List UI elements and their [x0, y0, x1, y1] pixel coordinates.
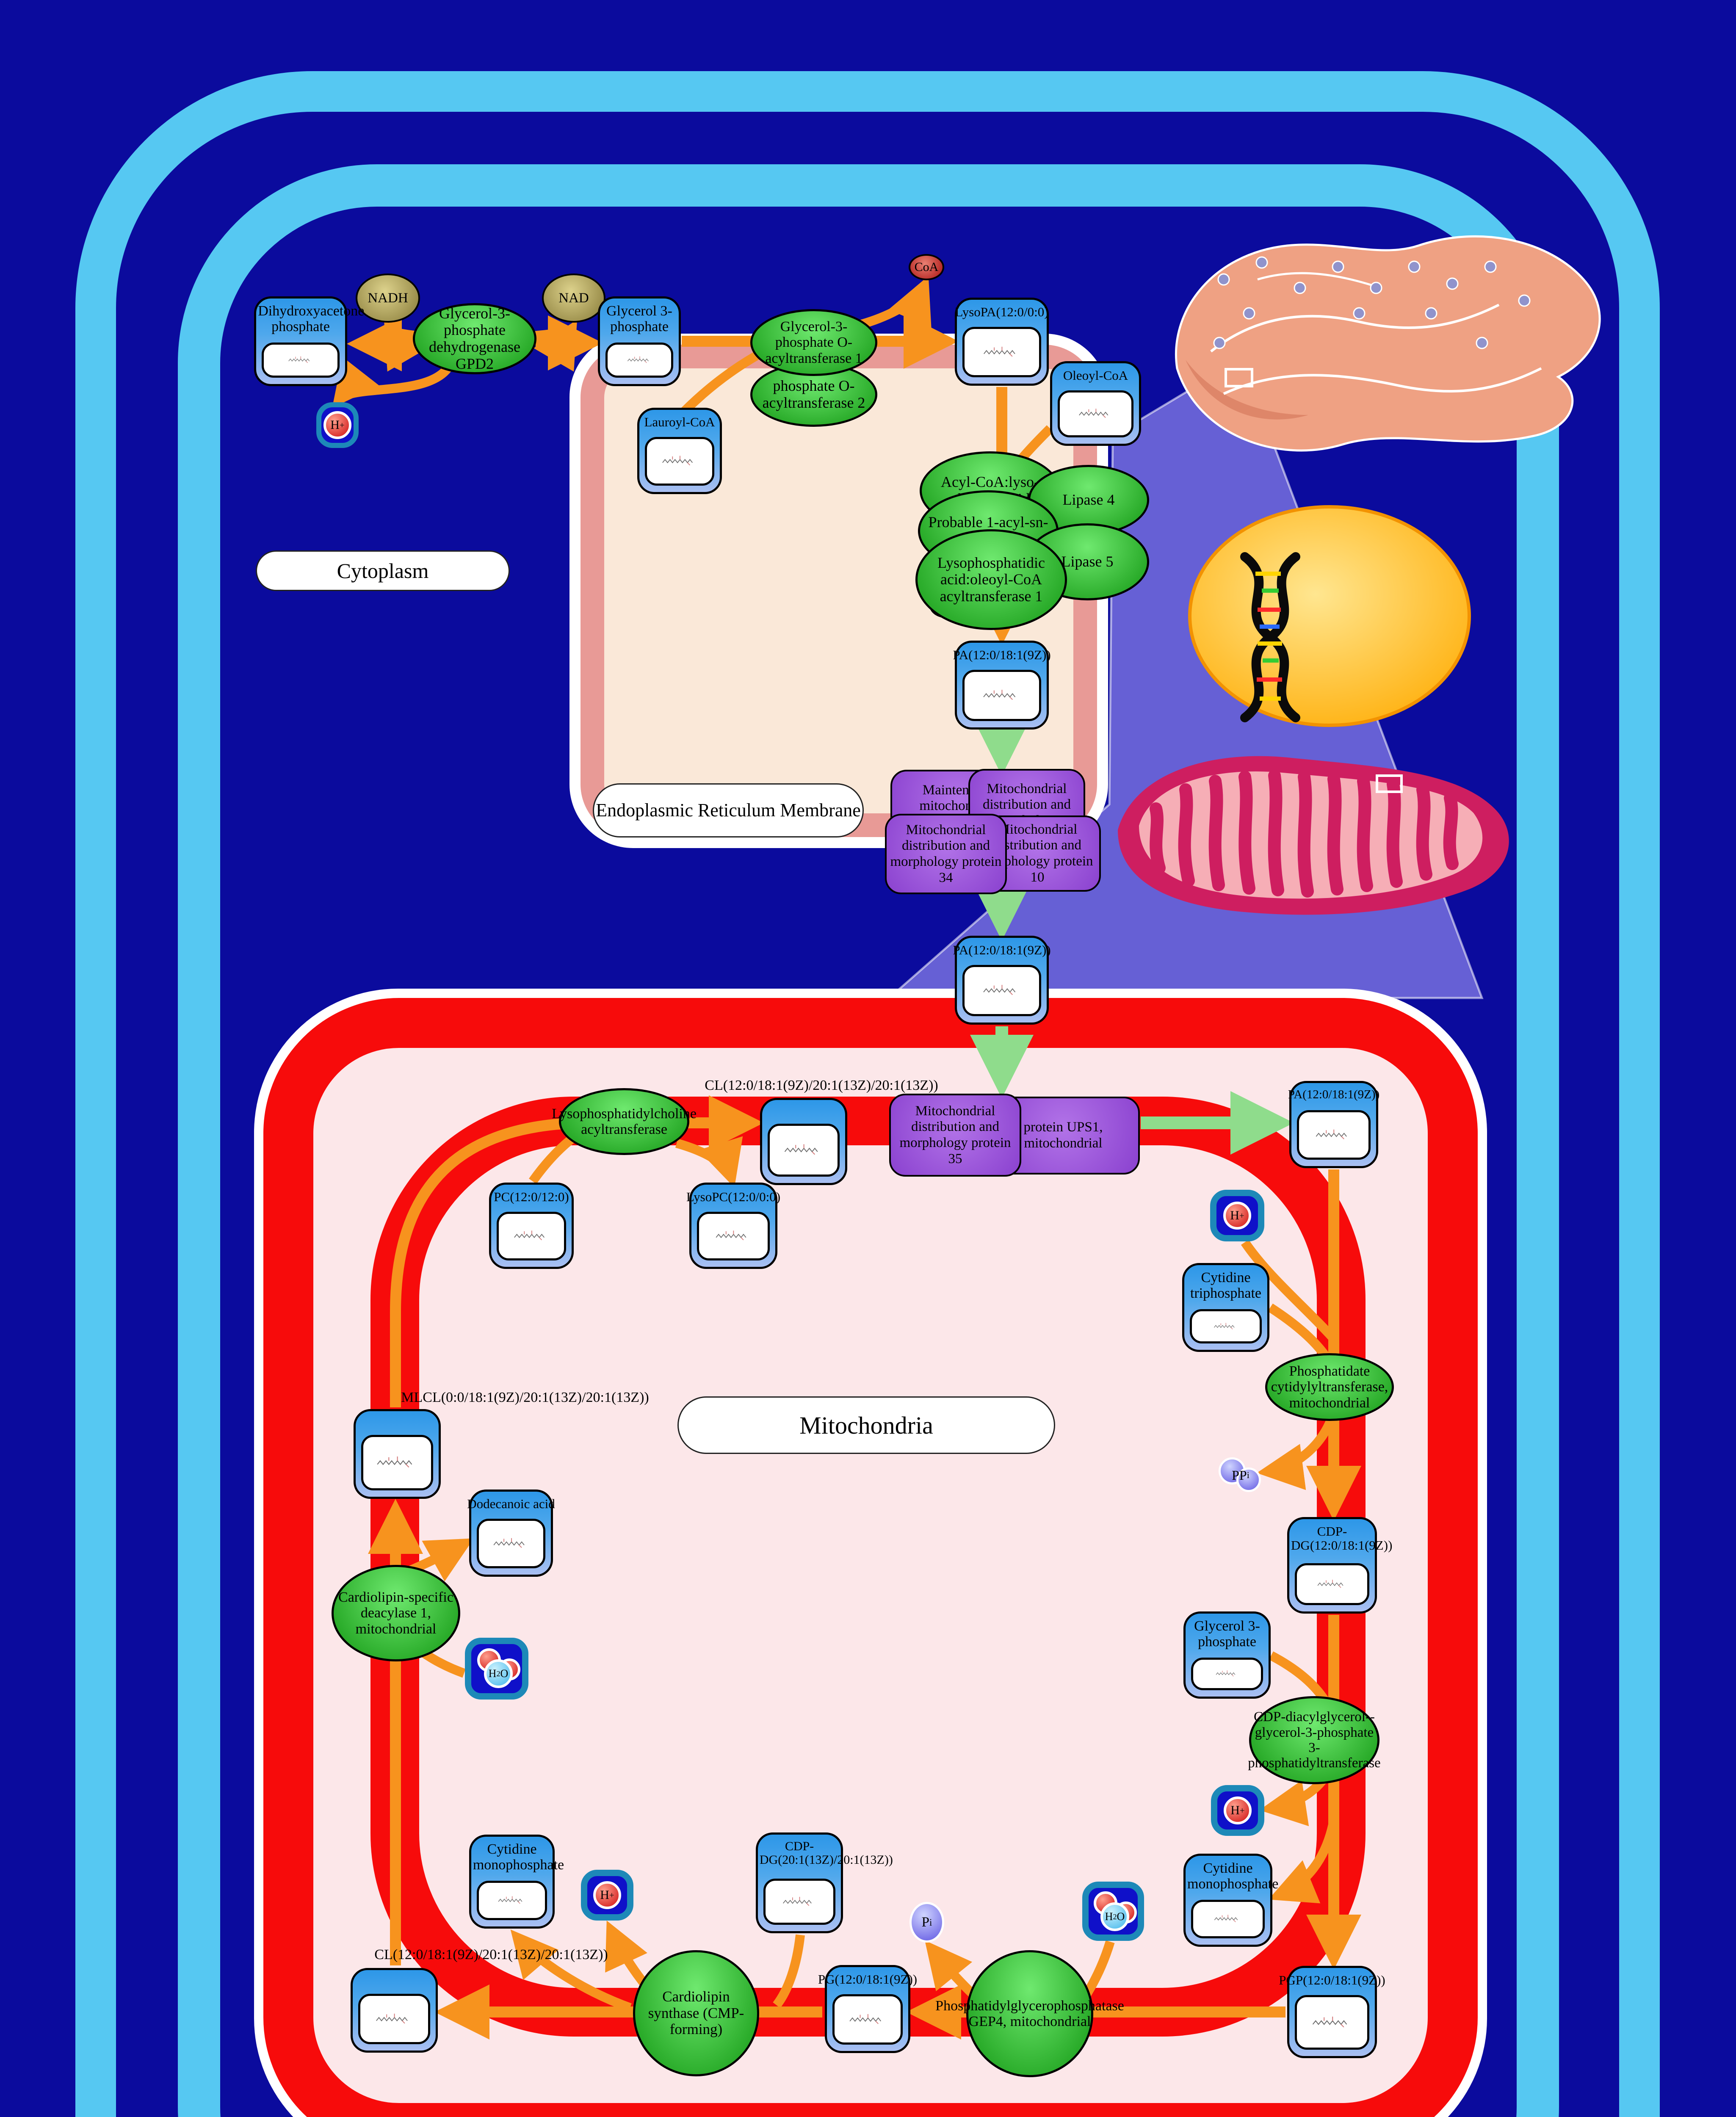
enzyme-tamm41[interactable]: Phosphatidate cytidylyltransferase, mito… — [1265, 1353, 1394, 1421]
metabolite-dhap[interactable]: Dihydroxyacetone phosphate — [254, 296, 347, 386]
enzyme-gpat2-label: phosphate O-acyltransferase 2 — [752, 378, 875, 411]
enzyme-lipase5-label: Lipase 5 — [1062, 553, 1114, 570]
structure-thumbnail — [1058, 390, 1133, 437]
metabolite-cmp-right[interactable]: Cytidine monophosphate — [1183, 1854, 1272, 1947]
enzyme-gpd2[interactable]: Glycerol-3-phosphate dehydrogenase GPD2 — [413, 303, 536, 374]
protein-mdm35[interactable]: Mitochondrial distribution and morpholog… — [889, 1094, 1021, 1177]
structure-thumbnail — [1295, 1563, 1369, 1605]
water-o: O — [500, 1667, 509, 1680]
metabolite-oleoyl-coa[interactable]: Oleoyl-CoA — [1050, 361, 1141, 446]
structure-thumbnail — [497, 1212, 566, 1260]
metabolite-lysopa[interactable]: LysoPA(12:0/0:0) — [955, 298, 1049, 386]
metabolite-g3p-mito-label: Glycerol 3-phosphate — [1187, 1619, 1267, 1650]
metabolite-pg-label: PG(12:0/18:1(9Z)) — [818, 1972, 917, 1986]
cofactor-nadh[interactable]: NADH — [356, 274, 420, 323]
metabolite-lysopc-label: LysoPC(12:0/0:0) — [686, 1190, 780, 1204]
nucleus-illustration — [1190, 507, 1469, 725]
enzyme-gpat1-label: Glycerol-3-phosphate O-acyltransferase 1 — [752, 319, 875, 366]
metabolite-cl-bottom-name: CL(12:0/18:1(9Z)/20:1(13Z)/20:1(13Z)) — [374, 1947, 608, 1963]
structure-thumbnail — [1191, 1658, 1263, 1690]
enzyme-crls1-label: Cardiolipin synthase (CMP-forming) — [635, 1989, 757, 2038]
metabolite-cmp-left[interactable]: Cytidine monophosphate — [469, 1835, 555, 1929]
enzyme-cld1[interactable]: Cardiolipin-specific deacylase 1, mitoch… — [332, 1565, 460, 1661]
enzyme-lpcat-label: Lysophosphatidylcholine acyltransferase — [552, 1106, 697, 1138]
structure-thumbnail — [962, 327, 1041, 377]
water-2: 2 — [1113, 1912, 1117, 1921]
structure-thumbnail — [763, 1879, 835, 1925]
water-ball: H2O — [1100, 1902, 1129, 1931]
cofactor-nad[interactable]: NAD — [542, 274, 605, 323]
structure-thumbnail — [768, 1124, 840, 1177]
proton-ball: H+ — [1223, 1202, 1251, 1230]
metabolite-pgp[interactable]: PGP(12:0/18:1(9Z)) — [1287, 1966, 1377, 2058]
protein-mdm34[interactable]: Mitochondrial distribution and morpholog… — [885, 814, 1007, 894]
enzyme-tamm41-label: Phosphatidate cytidylyltransferase, mito… — [1267, 1363, 1392, 1411]
structure-thumbnail — [962, 670, 1041, 721]
cofactor-ppi[interactable]: PPi — [1219, 1455, 1263, 1495]
ppi-subscript: i — [1247, 1470, 1249, 1481]
mitochondria-label-text: Mitochondria — [799, 1411, 933, 1440]
water-ball: H2O — [484, 1659, 513, 1688]
water-o: O — [1117, 1910, 1125, 1923]
ppi-label: PPi — [1219, 1455, 1263, 1495]
enzyme-pgs1-label: CDP-diacylglycerol--glycerol-3-phosphate… — [1248, 1709, 1380, 1771]
structure-thumbnail — [697, 1212, 770, 1260]
metabolite-ctp-label: Cytidine triphosphate — [1186, 1270, 1266, 1301]
water-h: H — [1105, 1910, 1113, 1923]
cofactor-nadh-label: NADH — [368, 290, 408, 306]
metabolite-pa-membrane[interactable]: PA(12:0/18:1(9Z)) — [955, 936, 1049, 1025]
metabolite-lysopc[interactable]: LysoPC(12:0/0:0) — [689, 1183, 777, 1269]
metabolite-pa-membrane-label: PA(12:0/18:1(9Z)) — [953, 943, 1050, 957]
metabolite-pc-label: PC(12:0/12:0) — [494, 1190, 569, 1204]
er-membrane-label-text: Endoplasmic Reticulum Membrane — [596, 800, 861, 821]
metabolite-cmp-left-label: Cytidine monophosphate — [473, 1842, 551, 1873]
pathway-canvas: NADH NAD Dihydroxyacetone phosphate H+ G… — [0, 0, 1736, 2117]
enzyme-lipase4-label: Lipase 4 — [1063, 492, 1115, 509]
metabolite-cdp-dg-2-label: CDP- DG(20:1(13Z)/20:1(13Z)) — [760, 1840, 839, 1867]
metabolite-dodecanoic-acid[interactable]: Dodecanoic acid — [469, 1490, 553, 1577]
proton-mito-2[interactable]: H+ — [1211, 1785, 1264, 1836]
structure-thumbnail — [477, 1881, 547, 1920]
metabolite-lauroyl-coa[interactable]: Lauroyl-CoA — [637, 408, 722, 494]
metabolite-cdp-dg-1[interactable]: CDP- DG(12:0/18:1(9Z)) — [1287, 1517, 1377, 1614]
structure-thumbnail — [477, 1519, 545, 1568]
metabolite-lysopa-label: LysoPA(12:0/0:0) — [955, 305, 1048, 319]
water-h: H — [489, 1667, 497, 1680]
proton-ball: H+ — [593, 1881, 621, 1909]
metabolite-cl-bottom[interactable] — [351, 1968, 438, 2053]
cofactor-nad-label: NAD — [558, 290, 589, 306]
metabolite-pa-er-label: PA(12:0/18:1(9Z)) — [953, 648, 1050, 662]
enzyme-gpd2-label: Glycerol-3-phosphate dehydrogenase GPD2 — [415, 305, 534, 372]
pi-subscript: i — [929, 1917, 932, 1928]
proton-cytoplasm[interactable]: H+ — [316, 402, 359, 448]
metabolite-pgp-label: PGP(12:0/18:1(9Z)) — [1279, 1973, 1385, 1987]
enzyme-gpat1[interactable]: Glycerol-3-phosphate O-acyltransferase 1 — [750, 309, 877, 376]
proton-symbol: H — [1230, 1208, 1239, 1223]
metabolite-pg[interactable]: PG(12:0/18:1(9Z)) — [825, 1965, 910, 2053]
cytoplasm-label: Cytoplasm — [256, 550, 510, 591]
proton-symbol: H — [330, 418, 340, 432]
er-membrane-label: Endoplasmic Reticulum Membrane — [593, 783, 864, 837]
structure-thumbnail — [361, 1435, 433, 1490]
metabolite-mlcl[interactable] — [354, 1409, 441, 1499]
metabolite-pa-er[interactable]: PA(12:0/18:1(9Z)) — [955, 641, 1049, 730]
proton-mito-1[interactable]: H+ — [1210, 1190, 1264, 1241]
metabolite-pc[interactable]: PC(12:0/12:0) — [489, 1183, 574, 1269]
proton-symbol: H — [600, 1888, 609, 1902]
cytoplasm-label-text: Cytoplasm — [337, 558, 429, 583]
protein-mdm35-label: Mitochondrial distribution and morpholog… — [891, 1103, 1020, 1167]
metabolite-mlcl-name: MLCL(0:0/18:1(9Z)/20:1(13Z)/20:1(13Z)) — [401, 1390, 649, 1406]
enzyme-lpaat1[interactable]: Lysophosphatidic acid:oleoyl-CoA acyltra… — [915, 529, 1067, 630]
structure-thumbnail — [1191, 1900, 1265, 1938]
metabolite-g3p-mito[interactable]: Glycerol 3-phosphate — [1183, 1611, 1271, 1699]
metabolite-cmp-right-label: Cytidine monophosphate — [1187, 1861, 1269, 1892]
metabolite-pa-mito[interactable]: PA(12:0/18:1(9Z)) — [1289, 1081, 1378, 1168]
water-2: 2 — [496, 1669, 500, 1678]
enzyme-lpcat[interactable]: Lysophosphatidylcholine acyltransferase — [559, 1088, 689, 1155]
structure-thumbnail — [1190, 1309, 1262, 1343]
proton-ball: H+ — [323, 411, 351, 439]
structure-thumbnail — [962, 965, 1041, 1016]
proton-ball: H+ — [1224, 1796, 1252, 1824]
proton-charge: + — [1239, 1211, 1244, 1221]
metabolite-ctp[interactable]: Cytidine triphosphate — [1182, 1263, 1269, 1352]
metabolite-oleoyl-coa-label: Oleoyl-CoA — [1063, 368, 1128, 382]
enzyme-lpaat1-label: Lysophosphatidic acid:oleoyl-CoA acyltra… — [918, 555, 1065, 605]
proton-charge: + — [340, 420, 345, 431]
pi-symbol: P — [922, 1915, 929, 1930]
enzyme-gep4[interactable]: Phosphatidylglycerophosphatase GEP4, mit… — [966, 1950, 1093, 2077]
cofactor-pi[interactable]: Pi — [909, 1902, 944, 1943]
metabolite-dhap-label: Dihydroxyacetone phosphate — [258, 304, 343, 334]
metabolite-g3p[interactable]: Glycerol 3-phosphate — [598, 296, 681, 386]
ppi-symbol: PP — [1232, 1468, 1247, 1483]
structure-thumbnail — [358, 1994, 430, 2044]
cofactor-coa-top[interactable]: CoA — [909, 254, 944, 280]
metabolite-cdp-dg-2[interactable]: CDP- DG(20:1(13Z)/20:1(13Z)) — [756, 1832, 843, 1933]
enzyme-crls1[interactable]: Cardiolipin synthase (CMP-forming) — [633, 1950, 759, 2076]
structure-thumbnail — [832, 1994, 903, 2045]
mitochondrion-illustration — [1118, 756, 1509, 915]
proton-charge: + — [1240, 1805, 1245, 1816]
metabolite-dodecanoic-acid-label: Dodecanoic acid — [467, 1497, 555, 1511]
structure-thumbnail — [645, 437, 714, 486]
enzyme-cld1-label: Cardiolipin-specific deacylase 1, mitoch… — [334, 1589, 458, 1637]
cofactor-coa-label: CoA — [915, 260, 939, 274]
mitochondria-label: Mitochondria — [677, 1396, 1055, 1454]
metabolite-pa-mito-label: PA(12:0/18:1(9Z)) — [1288, 1088, 1379, 1101]
proton-symbol: H — [1230, 1803, 1240, 1818]
er-illustration — [1176, 236, 1600, 450]
structure-thumbnail — [262, 343, 340, 378]
metabolite-g3p-label: Glycerol 3-phosphate — [602, 304, 677, 334]
metabolite-lauroyl-coa-label: Lauroyl-CoA — [644, 415, 715, 429]
water-mito-left[interactable]: H2O — [465, 1638, 528, 1700]
protein-mdm34-label: Mitochondrial distribution and morpholog… — [887, 822, 1005, 886]
metabolite-cdp-dg-1-label: CDP- DG(12:0/18:1(9Z)) — [1291, 1524, 1373, 1553]
proton-charge: + — [609, 1890, 614, 1901]
structure-thumbnail — [1297, 1110, 1371, 1160]
structure-thumbnail — [605, 343, 673, 378]
proton-mito-3[interactable]: H+ — [581, 1870, 633, 1921]
water-mito-bottom[interactable]: H2O — [1082, 1882, 1144, 1941]
structure-thumbnail — [1295, 1995, 1369, 2050]
enzyme-gep4-label: Phosphatidylglycerophosphatase GEP4, mit… — [935, 1998, 1124, 2030]
metabolite-cl-top-name: CL(12:0/18:1(9Z)/20:1(13Z)/20:1(13Z)) — [705, 1078, 938, 1094]
metabolite-cl-top[interactable] — [760, 1098, 847, 1185]
enzyme-pgs1[interactable]: CDP-diacylglycerol--glycerol-3-phosphate… — [1249, 1696, 1379, 1784]
